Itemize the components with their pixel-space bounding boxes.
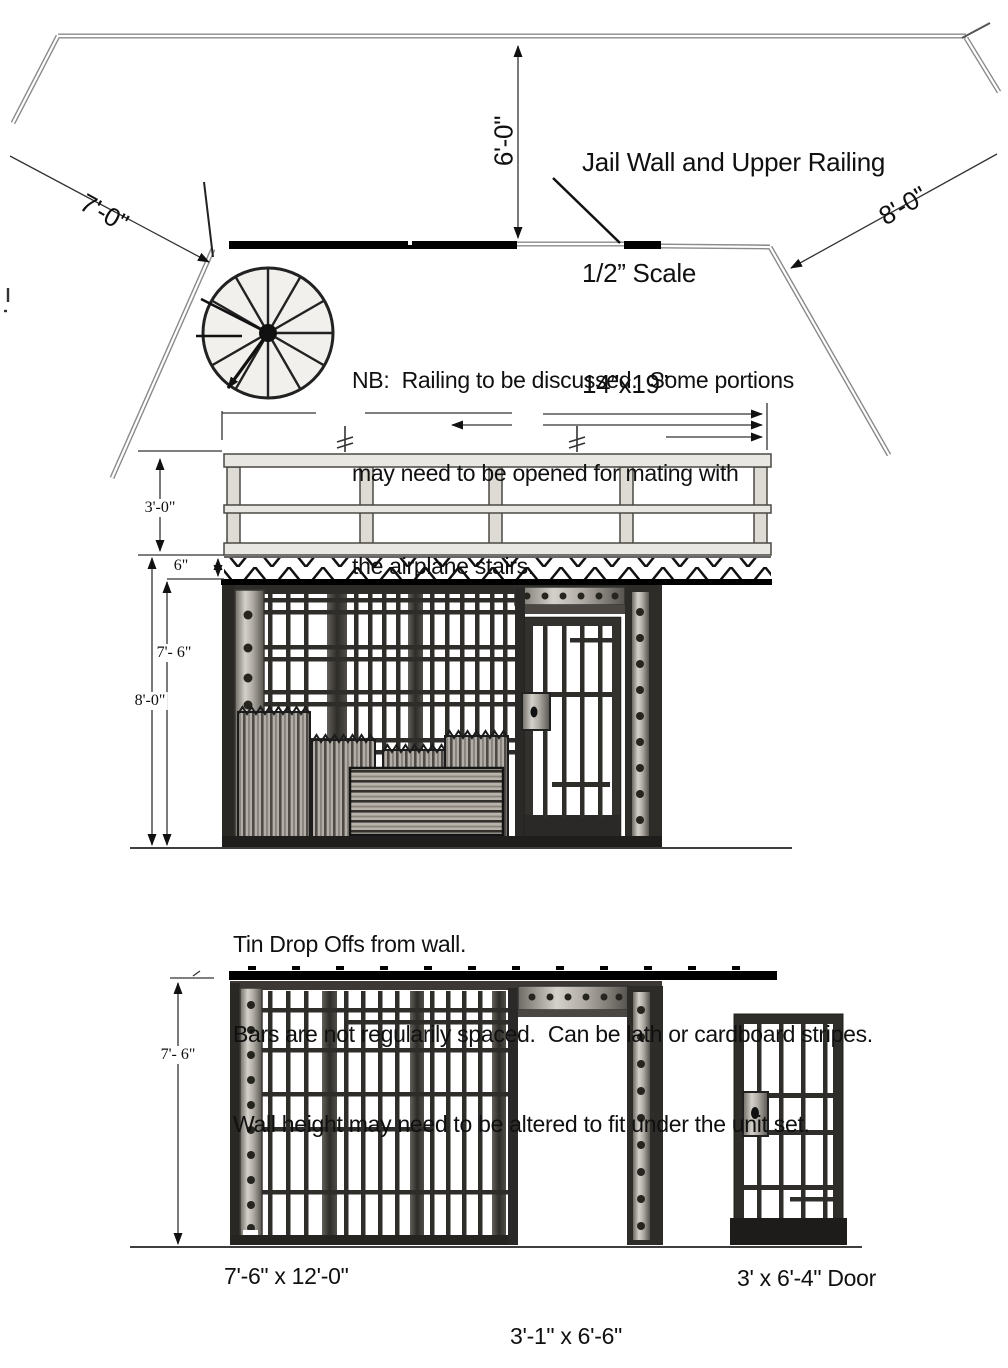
nb-note-line-2: may need to be opened for mating with: [352, 458, 794, 489]
nb-note-line-1: NB: Railing to be discussed. Some portio…: [352, 365, 794, 396]
dim-total-height: 8'-0": [133, 692, 168, 710]
nb-note: NB: Railing to be discussed. Some portio…: [352, 303, 794, 613]
notes-line-2: Bars are not regularily spaced. Can be l…: [233, 1019, 873, 1049]
notes-line-1: Tin Drop Offs from wall.: [233, 929, 873, 959]
wall-bottom-rail: [222, 836, 662, 847]
jail-wall-elevation: [222, 585, 662, 847]
dim-wall-height-lower: 7'- 6": [159, 1046, 198, 1064]
label-door-size: 3' x 6'-4" Door: [737, 1262, 876, 1295]
spiral-stair-icon: [196, 182, 333, 398]
riveted-post: [625, 587, 662, 846]
general-notes: Tin Drop Offs from wall. Bars are not re…: [233, 869, 873, 1169]
lock-plate-icon: [522, 693, 550, 730]
set-design-drawing: Jail Wall and Upper Railing 1/2” Scale 1…: [0, 0, 1008, 1368]
wall-left-stile: [222, 585, 235, 847]
dim-truss-band: 6": [172, 557, 191, 575]
lower-dimensions: [170, 971, 214, 1244]
plan-dim-6-0: 6'-0": [489, 116, 520, 166]
dim-railing-height: 3'-0": [143, 499, 178, 517]
title-line-2: 1/2” Scale: [582, 255, 885, 292]
label-opening-size: 3'-1" x 6'-6" Opening.: [510, 1254, 622, 1368]
centerline-icon: [337, 426, 353, 452]
title-line-1: Jail Wall and Upper Railing: [582, 144, 885, 181]
door-kick-plate: [730, 1218, 847, 1245]
nb-note-line-3: the airplane stairs.: [352, 551, 794, 582]
label-opening-line-1: 3'-1" x 6'-6": [510, 1320, 622, 1353]
jail-door: [515, 587, 662, 846]
label-wall-size: 7'-6" x 12'-0": [224, 1260, 348, 1293]
notes-line-3: Wall height may need to be altered to fi…: [233, 1109, 873, 1139]
tin-panel: [238, 712, 310, 842]
plan-wall-joint: [408, 240, 412, 245]
plank-box: [350, 768, 503, 835]
dim-wall-height-upper: 7'- 6": [155, 644, 194, 662]
